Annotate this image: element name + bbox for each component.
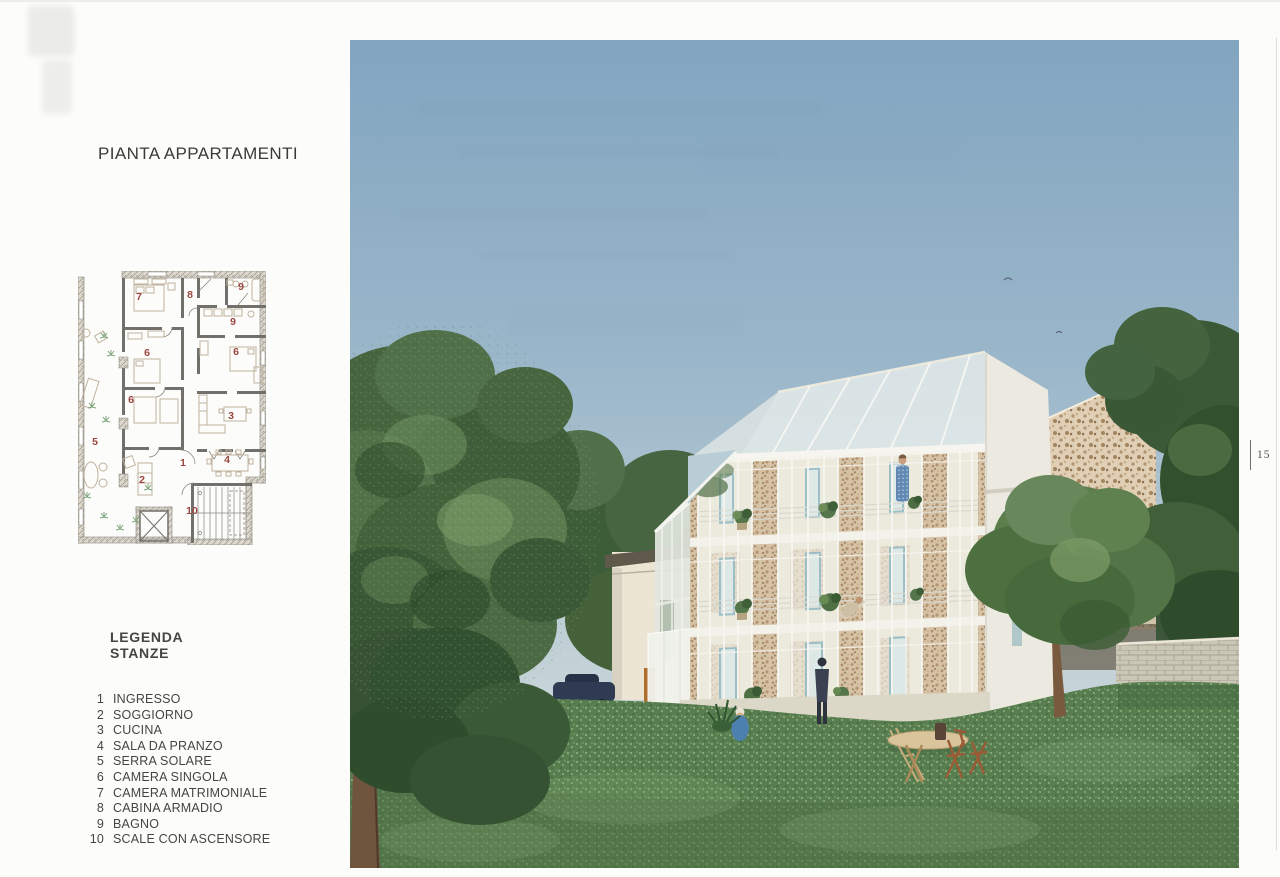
legend-item-label: SERRA SOLARE <box>113 754 212 770</box>
legend-list: 1INGRESSO2SOGGIORNO3CUCINA4SALA DA PRANZ… <box>88 692 308 848</box>
legend-item: 3CUCINA <box>88 723 308 739</box>
legend-item-label: CABINA ARMADIO <box>113 801 223 817</box>
legend-item-number: 4 <box>88 739 104 755</box>
legend-item: 7CAMERA MATRIMONIALE <box>88 786 308 802</box>
plan-room-number: 4 <box>224 454 230 466</box>
legend-heading-line: LEGENDA <box>110 629 308 645</box>
legend-item-label: BAGNO <box>113 817 159 833</box>
page-title: PIANTA APPARTAMENTI <box>98 144 298 164</box>
page-number-text: 15 <box>1257 449 1271 461</box>
legend: LEGENDA STANZE 1INGRESSO2SOGGIORNO3CUCIN… <box>88 629 308 848</box>
architectural-rendering <box>350 40 1239 868</box>
legend-item-number: 6 <box>88 770 104 786</box>
scanned-page: PIANTA APPARTAMENTI <box>0 0 1280 877</box>
legend-item-label: CUCINA <box>113 723 162 739</box>
legend-item-number: 10 <box>88 832 104 848</box>
legend-heading-line: STANZE <box>110 645 308 661</box>
plan-room-number: 9 <box>230 316 236 328</box>
legend-item: 1INGRESSO <box>88 692 308 708</box>
legend-item-number: 3 <box>88 723 104 739</box>
page-number: 15 <box>1250 440 1271 470</box>
plan-walls <box>78 271 266 545</box>
legend-item-label: CAMERA SINGOLA <box>113 770 228 786</box>
legend-item-label: CAMERA MATRIMONIALE <box>113 786 267 802</box>
scan-smudge <box>42 60 72 114</box>
legend-item: 4SALA DA PRANZO <box>88 739 308 755</box>
legend-item-number: 8 <box>88 801 104 817</box>
glass-facade <box>690 446 985 718</box>
left-wing <box>648 502 695 730</box>
plan-room-number: 7 <box>136 291 142 303</box>
plan-room-number: 1 <box>180 457 186 469</box>
plan-room-number: 6 <box>233 346 239 358</box>
plan-room-number: 9 <box>238 281 244 293</box>
legend-item: 9BAGNO <box>88 817 308 833</box>
plan-room-number: 8 <box>187 289 193 301</box>
legend-heading: LEGENDA STANZE <box>110 629 308 661</box>
legend-item: 10SCALE CON ASCENSORE <box>88 832 308 848</box>
legend-item-number: 2 <box>88 708 104 724</box>
legend-item: 8CABINA ARMADIO <box>88 801 308 817</box>
plan-room-number: 5 <box>92 436 98 448</box>
legend-item: 5SERRA SOLARE <box>88 754 308 770</box>
plan-plants <box>83 332 152 530</box>
plan-room-number: 6 <box>128 394 134 406</box>
scan-edge-top <box>0 0 1280 2</box>
retaining-wall <box>1116 638 1239 685</box>
plan-room-number: 2 <box>139 474 145 486</box>
legend-item: 2SOGGIORNO <box>88 708 308 724</box>
legend-item-number: 5 <box>88 754 104 770</box>
legend-item-label: INGRESSO <box>113 692 181 708</box>
legend-item-number: 1 <box>88 692 104 708</box>
legend-item-label: SALA DA PRANZO <box>113 739 223 755</box>
plan-room-number: 10 <box>186 505 198 517</box>
floor-plan: 78996663512410 <box>78 271 266 545</box>
plan-room-number: 6 <box>144 347 150 359</box>
plan-room-number: 3 <box>228 410 234 422</box>
legend-item: 6CAMERA SINGOLA <box>88 770 308 786</box>
legend-item-label: SCALE CON ASCENSORE <box>113 832 270 848</box>
scan-smudge <box>28 6 74 56</box>
legend-item-number: 9 <box>88 817 104 833</box>
legend-item-label: SOGGIORNO <box>113 708 193 724</box>
legend-item-number: 7 <box>88 786 104 802</box>
scan-edge-right <box>1276 38 1277 850</box>
